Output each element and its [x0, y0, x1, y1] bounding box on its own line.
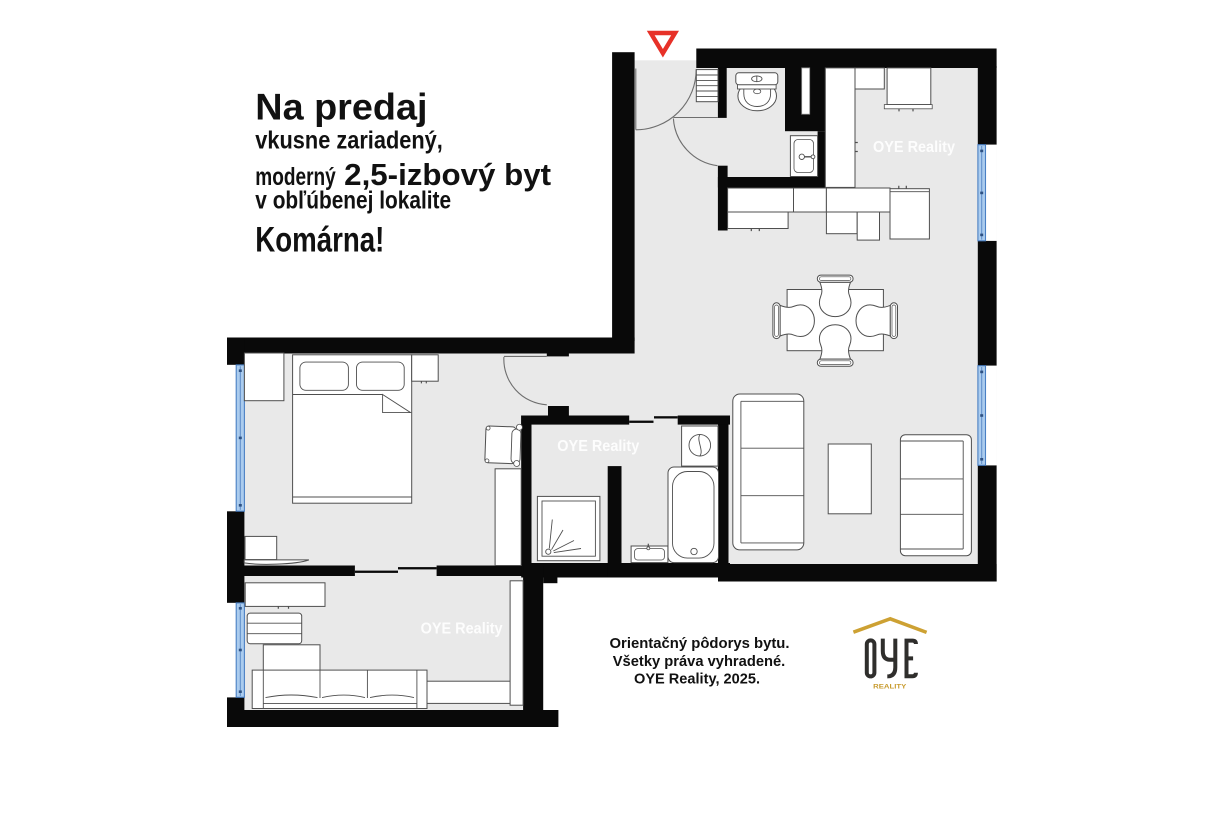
- svg-text:vkusne zariadený,: vkusne zariadený,: [255, 127, 442, 155]
- svg-text:Komárna!: Komárna!: [255, 221, 384, 260]
- svg-text:OYE Reality: OYE Reality: [557, 438, 639, 455]
- svg-text:OYE Reality: OYE Reality: [873, 139, 955, 156]
- svg-text:OYE Reality, 2025.: OYE Reality, 2025.: [634, 672, 760, 688]
- svg-text:Na predaj: Na predaj: [255, 87, 427, 128]
- svg-text:REALITY: REALITY: [873, 684, 907, 691]
- svg-text:Orientačný pôdorys bytu.: Orientačný pôdorys bytu.: [610, 636, 790, 652]
- svg-text:Všetky práva vyhradené.: Všetky práva vyhradené.: [613, 654, 786, 670]
- svg-text:OYE Reality: OYE Reality: [421, 620, 503, 637]
- svg-text:v obľúbenej lokalite: v obľúbenej lokalite: [255, 187, 451, 215]
